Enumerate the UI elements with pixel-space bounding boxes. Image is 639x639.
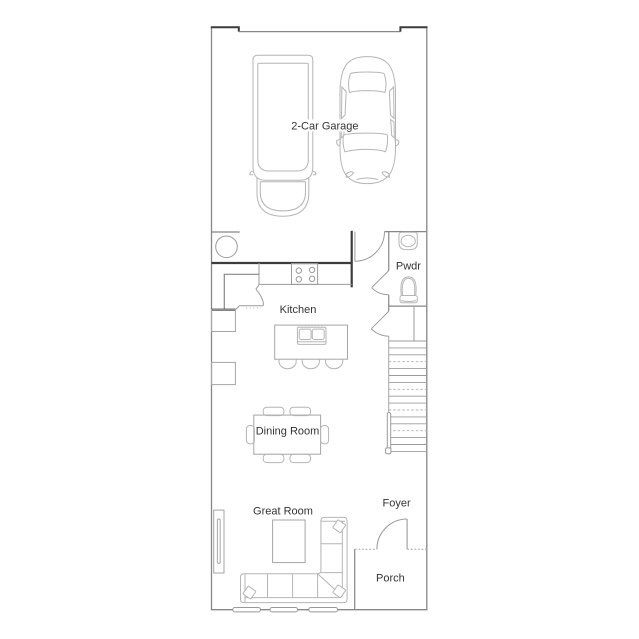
svg-text:Dining Room: Dining Room bbox=[256, 425, 320, 437]
svg-text:Foyer: Foyer bbox=[383, 497, 411, 509]
svg-text:Porch: Porch bbox=[376, 572, 405, 584]
svg-text:Kitchen: Kitchen bbox=[280, 304, 317, 316]
svg-text:2-Car Garage: 2-Car Garage bbox=[291, 120, 358, 132]
svg-text:Pwdr: Pwdr bbox=[396, 261, 421, 273]
svg-text:Great Room: Great Room bbox=[253, 505, 313, 517]
